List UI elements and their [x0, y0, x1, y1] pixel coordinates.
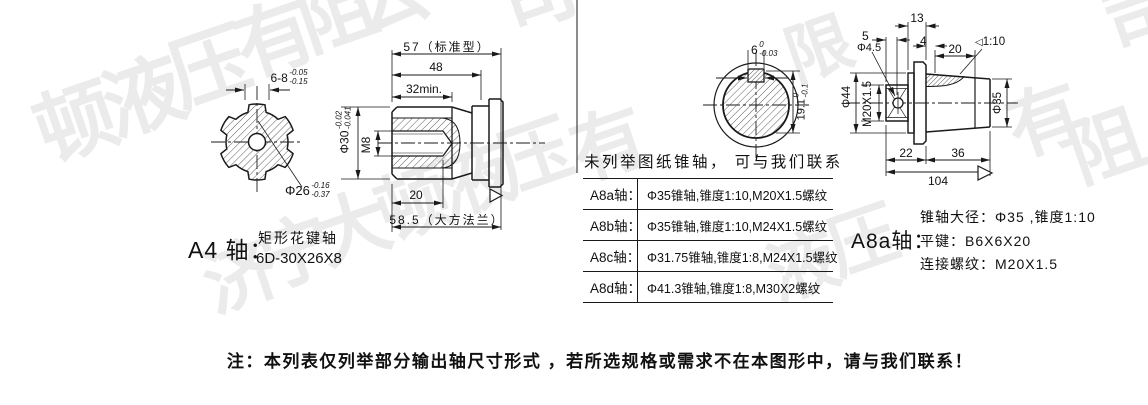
row-label: A8a轴：: [583, 179, 638, 209]
dim-22: 22: [899, 146, 912, 160]
dim-spline-width: 6-8-0.05-0.15: [270, 69, 307, 86]
dim-48: 48: [429, 60, 442, 74]
dim-36: 36: [951, 146, 964, 160]
shaft-a8a-spec-key: 平键：B6X6X20: [920, 231, 1031, 251]
row-desc: Φ35锥轴,锥度1:10,M24X1.5螺纹: [638, 216, 833, 235]
dim-104: 104: [928, 174, 948, 188]
dim-thread-m20: M20X1.5: [862, 81, 874, 127]
dim-4: 4: [920, 34, 927, 48]
table-row: A8d轴： Φ41.3锥轴,锥度1:8,M30X2螺纹: [583, 272, 833, 303]
dim-flange-diameter: Φ44: [841, 86, 853, 108]
dim-spline-length: 32min.: [406, 82, 442, 96]
dim-key-width: 60-0.03: [751, 41, 777, 58]
footer-note: 注：本列表仅列举部分输出轴尺寸形式 ，若所选规格或需求不在本图形中，请与我们联系…: [227, 347, 973, 372]
dim-total-length: 57（标准型）: [403, 38, 490, 55]
table-row: A8c轴： Φ31.75锥轴,锥度1:8,M24X1.5螺纹: [583, 241, 833, 272]
row-desc: Φ41.3锥轴,锥度1:8,M30X2螺纹: [638, 278, 833, 297]
dim-5: 5: [862, 29, 869, 43]
datum-flag-icon: [490, 189, 502, 202]
a4-front-view: [211, 84, 303, 194]
dim-key-length: 20: [948, 42, 961, 56]
engineering-drawing-canvas: [0, 0, 1148, 405]
dim-thread-m8: M8: [359, 137, 373, 154]
row-label: A8b轴：: [583, 210, 638, 240]
catalog-shaft-drawing-page: 顿液压有阻公司济宁大顿液压有限液压有阻司: [0, 0, 1148, 405]
dim-major-diameter: Φ30-0.02-0.041: [336, 106, 353, 153]
dim-thread-depth: 20: [409, 188, 422, 202]
table-row: A8a轴： Φ35锥轴,锥度1:10,M20X1.5螺纹: [583, 179, 833, 210]
shaft-a4-type: 矩形花键轴: [258, 228, 338, 248]
dim-key-depth: 19.10-0.1: [793, 84, 810, 121]
shaft-a8a-spec-taper: 锥轴大径：Φ35 ,锥度1:10: [920, 207, 1096, 227]
dim-cross-hole: Φ4.5: [857, 42, 881, 54]
shaft-options-table: A8a轴： Φ35锥轴,锥度1:10,M20X1.5螺纹 A8b轴： Φ35锥轴…: [583, 178, 833, 303]
row-desc: Φ31.75锥轴,锥度1:8,M24X1.5螺纹: [638, 247, 838, 266]
shaft-a8a-spec-thread: 连接螺纹：M20X1.5: [920, 254, 1058, 274]
row-label: A8c轴：: [583, 241, 638, 271]
taper-callout: ◁1:10: [975, 36, 1005, 48]
dim-13: 13: [910, 11, 923, 25]
contact-note: 未列举图纸锥轴， 可与我们联系: [584, 150, 843, 172]
shaft-a4-spec: 6D-30X26X8: [256, 250, 342, 267]
dim-shaft-diameter: Φ35: [992, 92, 1004, 114]
dim-minor-diameter: Φ26-0.16-0.37: [285, 182, 330, 199]
row-label: A8d轴：: [583, 272, 638, 302]
table-row: A8b轴： Φ35锥轴,锥度1:10,M24X1.5螺纹: [583, 210, 833, 241]
row-desc: Φ35锥轴,锥度1:10,M20X1.5螺纹: [638, 185, 833, 204]
taper-icon: ◁: [975, 37, 983, 48]
dim-flange-length: 58.5（大方法兰）: [389, 211, 504, 228]
